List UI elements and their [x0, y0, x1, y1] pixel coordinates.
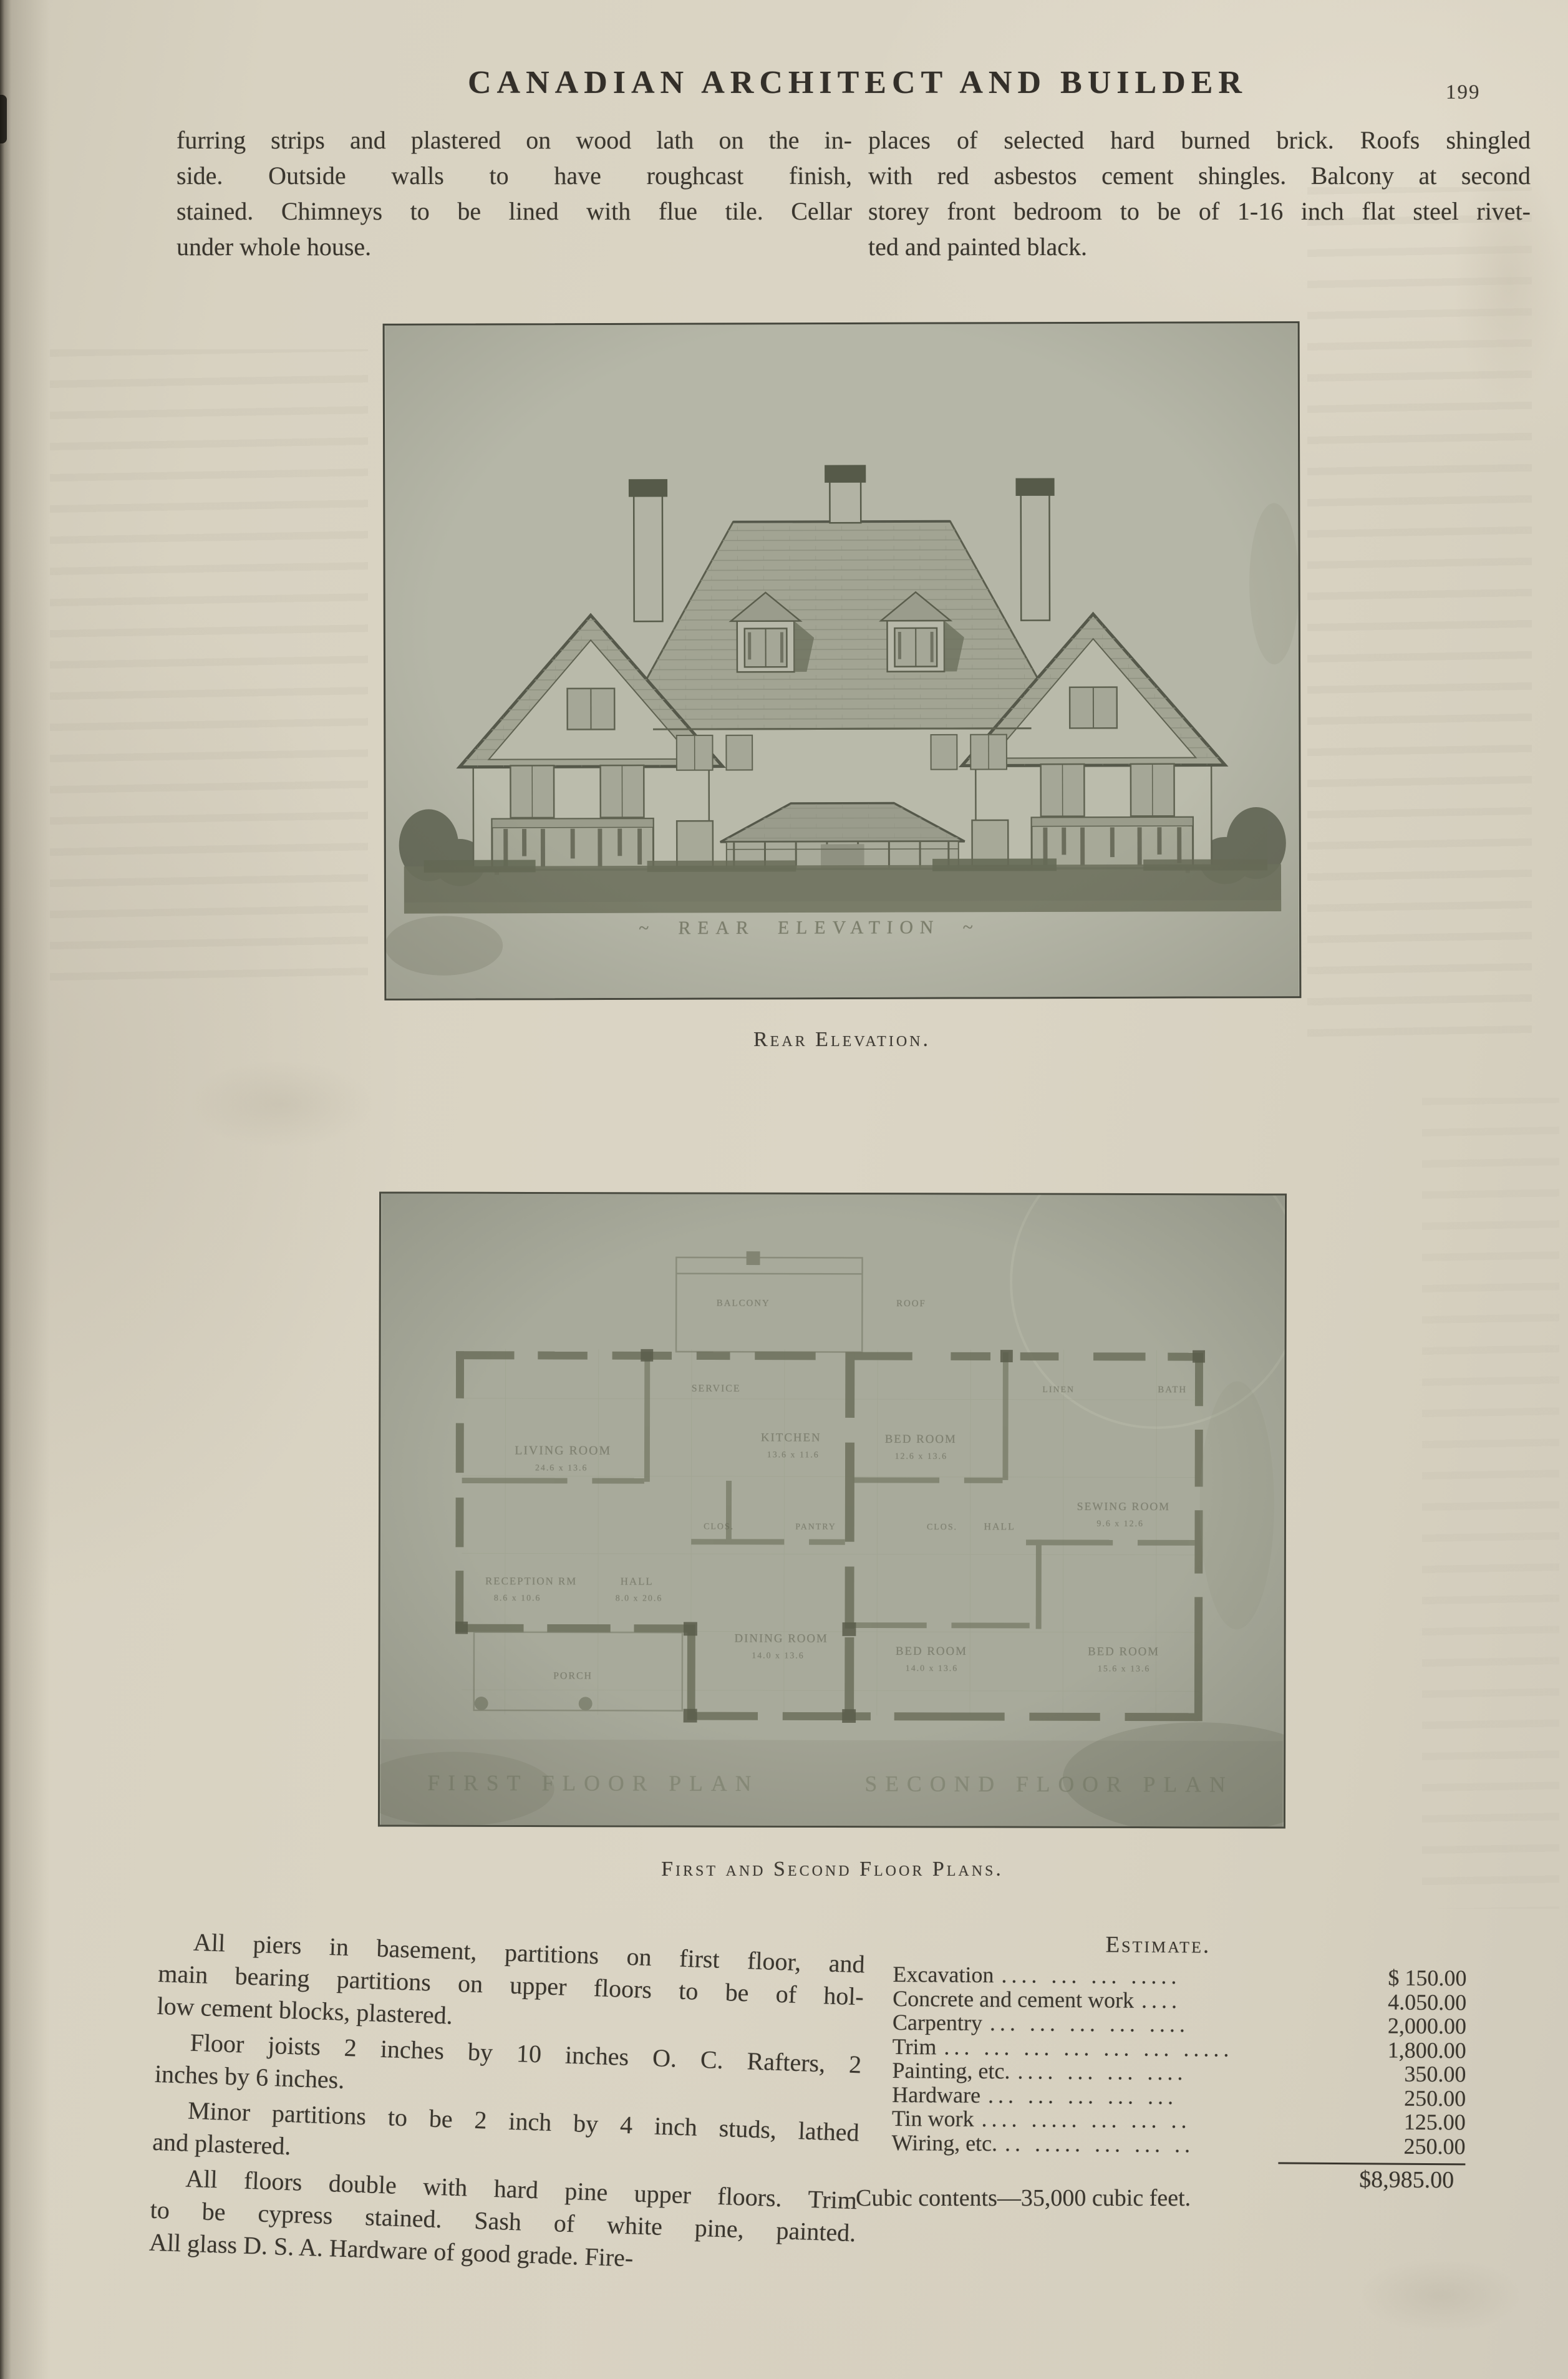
text-line: ted and painted black. [868, 229, 1531, 264]
rear-elevation-figure: ~ REAR ELEVATION ~ [383, 321, 1302, 1001]
floor-plans-figure: LIVING ROOM 24.6 x 13.6 SERVICE KITCHEN … [378, 1191, 1287, 1828]
elevation-caption: Rear Elevation. [384, 1028, 1300, 1052]
estimate-leader-dots: .... [1134, 1988, 1297, 2013]
spec-paragraph: All piers in basement, partitions on fir… [157, 1925, 866, 2045]
estimate-item-amount: $ 150.00 [1297, 1965, 1466, 1990]
text-line: stained. Chimneys to be lined with flue … [177, 193, 852, 229]
hand-lettered-elevation-label: ~ REAR ELEVATION ~ [639, 917, 980, 938]
magazine-page: CANADIAN ARCHITECT AND BUILDER 199 furri… [0, 0, 1568, 2379]
estimate-leader-dots: .. ..... ... ... .. [997, 2131, 1296, 2158]
estimate-row: Hardware ... ... ... ... ... 250.00 [892, 2082, 1466, 2110]
intro-column-left: furring strips and plastered on wood lat… [177, 122, 852, 264]
estimate-item-amount: 350.00 [1296, 2062, 1466, 2086]
page-left-shading [0, 0, 50, 2379]
spec-paragraph: All floors double with hard pine upper f… [148, 2161, 858, 2282]
paper-blotch [187, 1060, 374, 1148]
text-line: with red asbestos cement shingles. Balco… [868, 158, 1531, 193]
photo-vignette [380, 1193, 1284, 1826]
estimate-item-amount: 2,000.00 [1297, 2013, 1466, 2038]
estimate-item-label: Excavation [893, 1962, 994, 1987]
estimate-item-label: Trim [893, 2034, 937, 2058]
page-edge-nick [0, 95, 7, 143]
estimate-leader-dots: ... ... ... ... ... ... ..... [936, 2035, 1297, 2062]
estimate-item-label: Wiring, etc. [892, 2130, 998, 2155]
showthrough-texture [1307, 187, 1532, 1048]
estimate-item-amount: 250.00 [1296, 2085, 1466, 2110]
estimate-row: Carpentry ... ... ... ... .... 2,000.00 [893, 2010, 1466, 2038]
estimate-leader-dots: ... ... ... ... .... [982, 2011, 1297, 2037]
showthrough-texture [50, 349, 368, 998]
estimate-item-label: Carpentry [893, 2010, 982, 2035]
cubic-contents-note: Cubic contents—35,000 cubic feet. [856, 2184, 1191, 2212]
intro-column-right: places of selected hard burned brick. Ro… [868, 122, 1531, 264]
estimate-item-label: Hardware [892, 2082, 980, 2106]
estimate-item-label: Tin work [892, 2106, 974, 2131]
plans-caption: First and Second Floor Plans. [379, 1858, 1286, 1881]
estimate-leader-dots: .... ... ... .... [1010, 2059, 1296, 2085]
text-line: side. Outside walls to have roughcast fi… [177, 158, 852, 193]
text-line: storey front bedroom to be of 1-16 inch … [868, 193, 1531, 229]
estimate-item-amount: 1,800.00 [1297, 2037, 1466, 2062]
floor-plans-drawing: LIVING ROOM 24.6 x 13.6 SERVICE KITCHEN … [380, 1193, 1285, 1826]
estimate-row: Wiring, etc. .. ..... ... ... .. 250.00 [892, 2130, 1466, 2158]
paper-blotch [1360, 2258, 1522, 2333]
rear-elevation-drawing: ~ REAR ELEVATION ~ [385, 323, 1300, 999]
estimate-item-amount: 250.00 [1295, 2133, 1465, 2158]
estimate-table: Estimate. Excavation .... ... ... ..... … [891, 1931, 1467, 2195]
specification-column: All piers in basement, partitions on fir… [148, 1925, 865, 2285]
estimate-leader-dots: .... ... ... ..... [994, 1963, 1297, 1989]
text-line: under whole house. [177, 229, 852, 264]
journal-masthead: CANADIAN ARCHITECT AND BUILDER [309, 64, 1406, 101]
estimate-leader-dots: ... ... ... ... ... [980, 2083, 1296, 2109]
text-line: furring strips and plastered on wood lat… [177, 122, 852, 158]
estimate-item-amount: 125.00 [1296, 2110, 1466, 2134]
estimate-item-label: Painting, etc. [892, 2058, 1010, 2083]
estimate-item-label: Concrete and cement work [893, 1986, 1134, 2012]
estimate-title: Estimate. [893, 1931, 1467, 1960]
showthrough-texture [1422, 1098, 1559, 1909]
page-number: 199 [1446, 81, 1481, 104]
estimate-item-amount: 4.050.00 [1297, 1989, 1466, 2014]
text-line: places of selected hard burned brick. Ro… [868, 122, 1531, 158]
estimate-leader-dots: .... ..... ... ... .. [974, 2107, 1296, 2133]
photo-vignette [385, 323, 1299, 999]
